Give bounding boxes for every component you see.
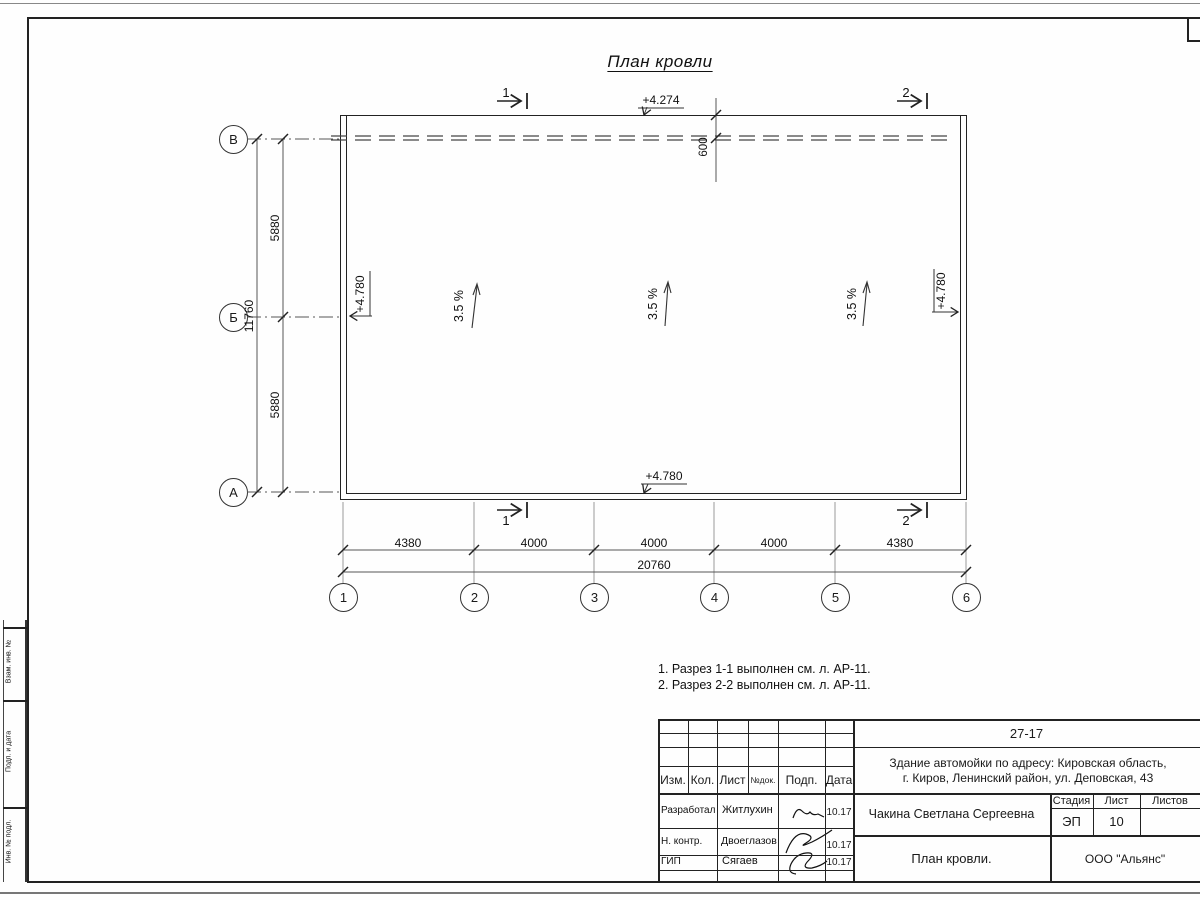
dim-20760-total: 20760 [624, 558, 684, 572]
hdr-list: Лист [719, 773, 745, 787]
section-label-2-top: 2 [899, 85, 913, 100]
doc-number-value: 27-17 [1010, 726, 1043, 741]
dim-4000-1: 4000 [504, 536, 564, 550]
tb-header-list: Лист [717, 766, 748, 793]
dim-5880-bottom: 5880 [268, 383, 282, 427]
stage-value: ЭП [1062, 814, 1081, 829]
sheet-title-value: План кровли. [911, 851, 991, 866]
tb-stage-label: Стадия [1050, 793, 1093, 808]
tb-date-gip: 10.17 [825, 855, 853, 870]
dim-5880-top: 5880 [268, 206, 282, 250]
client-name: Чакина Светлана Сергеевна [869, 807, 1035, 821]
tb-header-data: Дата [825, 766, 853, 793]
date-value: 10.17 [826, 840, 851, 851]
dim-4380-1: 4380 [378, 536, 438, 550]
dimension-ticks [252, 110, 971, 577]
slope-mark-1: 3.5 % [452, 283, 466, 329]
tb-organization: ООО "Альянс" [1050, 835, 1200, 882]
tb-line [717, 719, 718, 882]
elevation-top: +4.274 [635, 93, 687, 107]
tb-sheet-label: Лист [1093, 793, 1140, 808]
tb-line [778, 719, 779, 882]
tb-role-gip: ГИП [661, 856, 681, 867]
hdr-izm: Изм. [660, 773, 686, 787]
dim-4380-2: 4380 [870, 536, 930, 550]
sheet-label: Лист [1105, 795, 1129, 807]
axis-lines [247, 139, 341, 492]
tb-header-podp: Подп. [778, 766, 825, 793]
tb-name-developer: Житлухин [722, 804, 773, 816]
project-line-1: Здание автомойки по адресу: Кировская об… [889, 756, 1166, 771]
tb-project-name: Здание автомойки по адресу: Кировская об… [858, 748, 1198, 793]
tb-date-developer: 10.17 [825, 803, 853, 821]
note-1: 1. Разрез 1-1 выполнен см. л. АР-11. [658, 662, 871, 676]
tb-sheet-number: 10 [1093, 808, 1140, 835]
parapet-dashed-line [331, 136, 950, 140]
section-label-2-bottom: 2 [899, 513, 913, 528]
dim-parapet-600: 600 [698, 127, 710, 167]
tb-header-ndok: №док. [748, 766, 778, 793]
tb-stage-value: ЭП [1050, 808, 1093, 835]
dim-11760-total: 11760 [242, 291, 256, 341]
tb-sheets-label: Листов [1140, 793, 1200, 808]
elevation-right: +4.780 [934, 265, 948, 317]
section-marks [497, 93, 927, 518]
tb-header-kol: Кол. [688, 766, 717, 793]
slope-arrows [472, 282, 870, 328]
sheets-label: Листов [1152, 795, 1188, 807]
tb-line [658, 828, 853, 829]
stage-label: Стадия [1053, 795, 1091, 807]
date-value: 10.17 [826, 857, 851, 868]
hdr-data: Дата [826, 773, 853, 787]
tb-sheet-title: План кровли. [853, 835, 1050, 882]
signature-zhitlukhin [793, 810, 824, 818]
slope-mark-3: 3.5 % [845, 281, 859, 327]
hdr-kol: Кол. [691, 773, 715, 787]
sheet-number-value: 10 [1109, 814, 1123, 829]
tb-doc-number: 27-17 [853, 719, 1200, 747]
tb-name-ncontr: Двоеглазов [721, 835, 777, 847]
slope-mark-2: 3.5 % [646, 281, 660, 327]
tb-name-gip: Сягаев [722, 855, 758, 867]
elevation-left: +4.780 [353, 268, 367, 320]
note-2: 2. Разрез 2-2 выполнен см. л. АР-11. [658, 678, 871, 692]
section-label-1-bottom: 1 [499, 513, 513, 528]
project-line-2: г. Киров, Ленинский район, ул. Деповская… [903, 771, 1154, 786]
date-value: 10.17 [826, 807, 851, 818]
section-label-1-top: 1 [499, 85, 513, 100]
tb-date-ncontr: 10.17 [825, 837, 853, 853]
tb-role-ncontr: Н. контр. [661, 836, 702, 847]
tb-line [658, 719, 660, 882]
tb-header-izm: Изм. [658, 766, 688, 793]
hdr-podp: Подп. [786, 773, 818, 787]
vertical-dimension-lines [257, 139, 283, 492]
drawing-sheet: Взам. инв. № Подп. и дата Инв. № подл. П… [0, 0, 1200, 900]
elevation-bottom: +4.780 [638, 469, 690, 483]
dim-4000-2: 4000 [624, 536, 684, 550]
organization-name: ООО "Альянс" [1085, 852, 1165, 866]
tb-line [658, 870, 853, 871]
hdr-ndok: №док. [751, 775, 776, 785]
dim-4000-3: 4000 [744, 536, 804, 550]
tb-role-developer: Разработал [661, 805, 715, 816]
tb-client: Чакина Светлана Сергеевна [853, 793, 1050, 835]
